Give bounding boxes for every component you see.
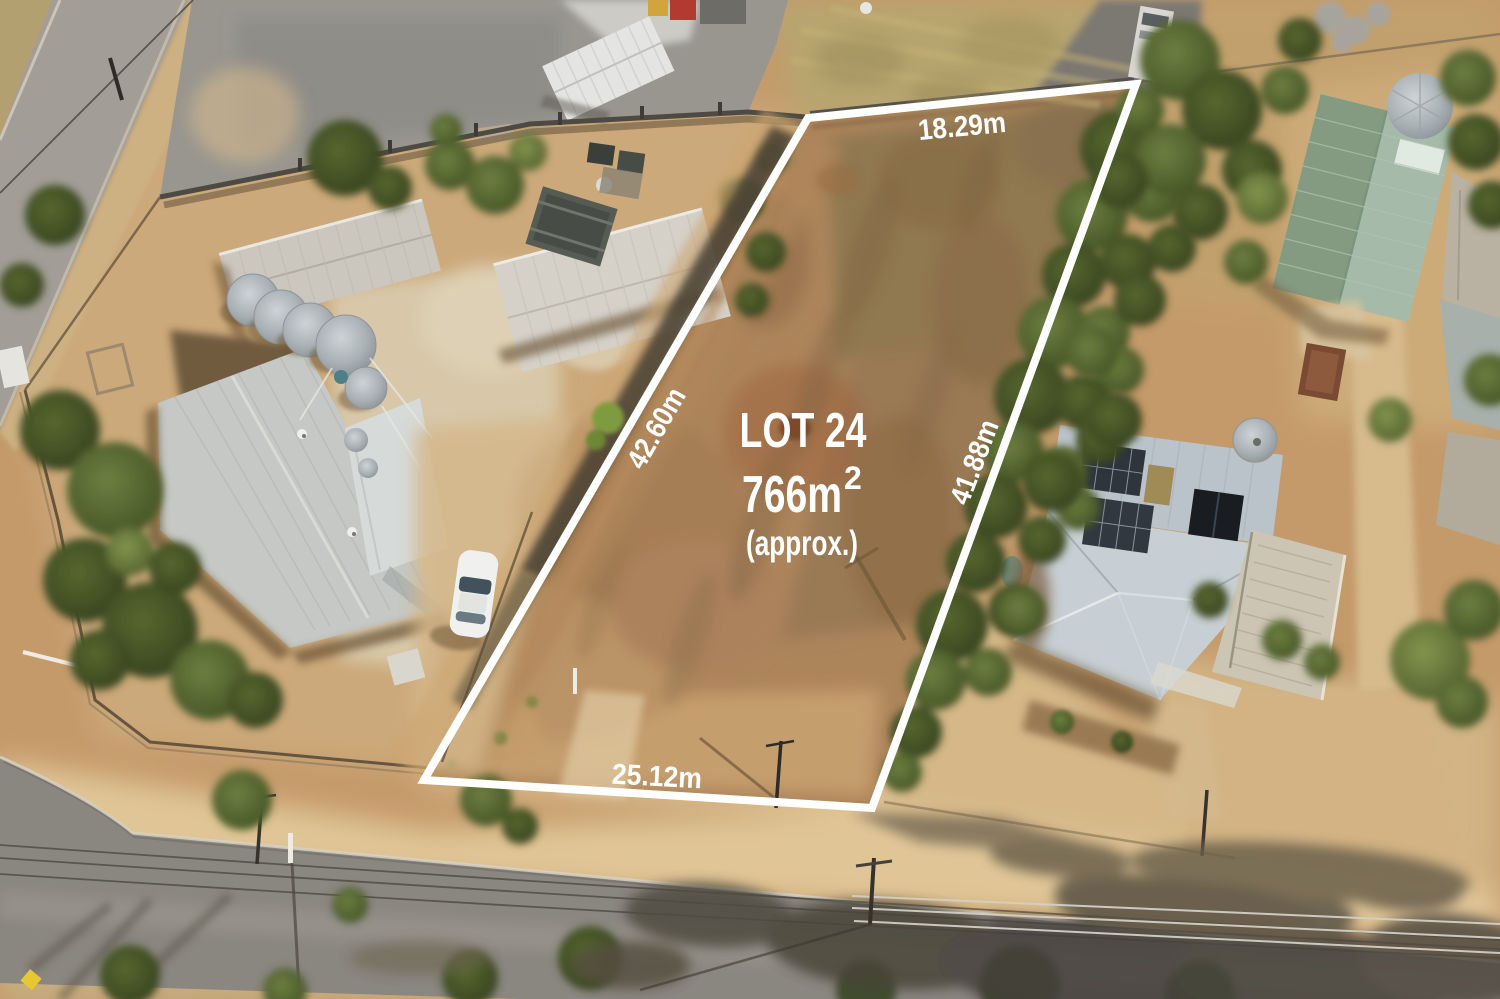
svg-text:2: 2 [844,460,862,496]
svg-text:LOT 24: LOT 24 [740,404,867,458]
svg-text:(approx.): (approx.) [746,524,858,563]
svg-text:766m: 766m [742,466,842,524]
svg-text:25.12m: 25.12m [611,759,703,796]
